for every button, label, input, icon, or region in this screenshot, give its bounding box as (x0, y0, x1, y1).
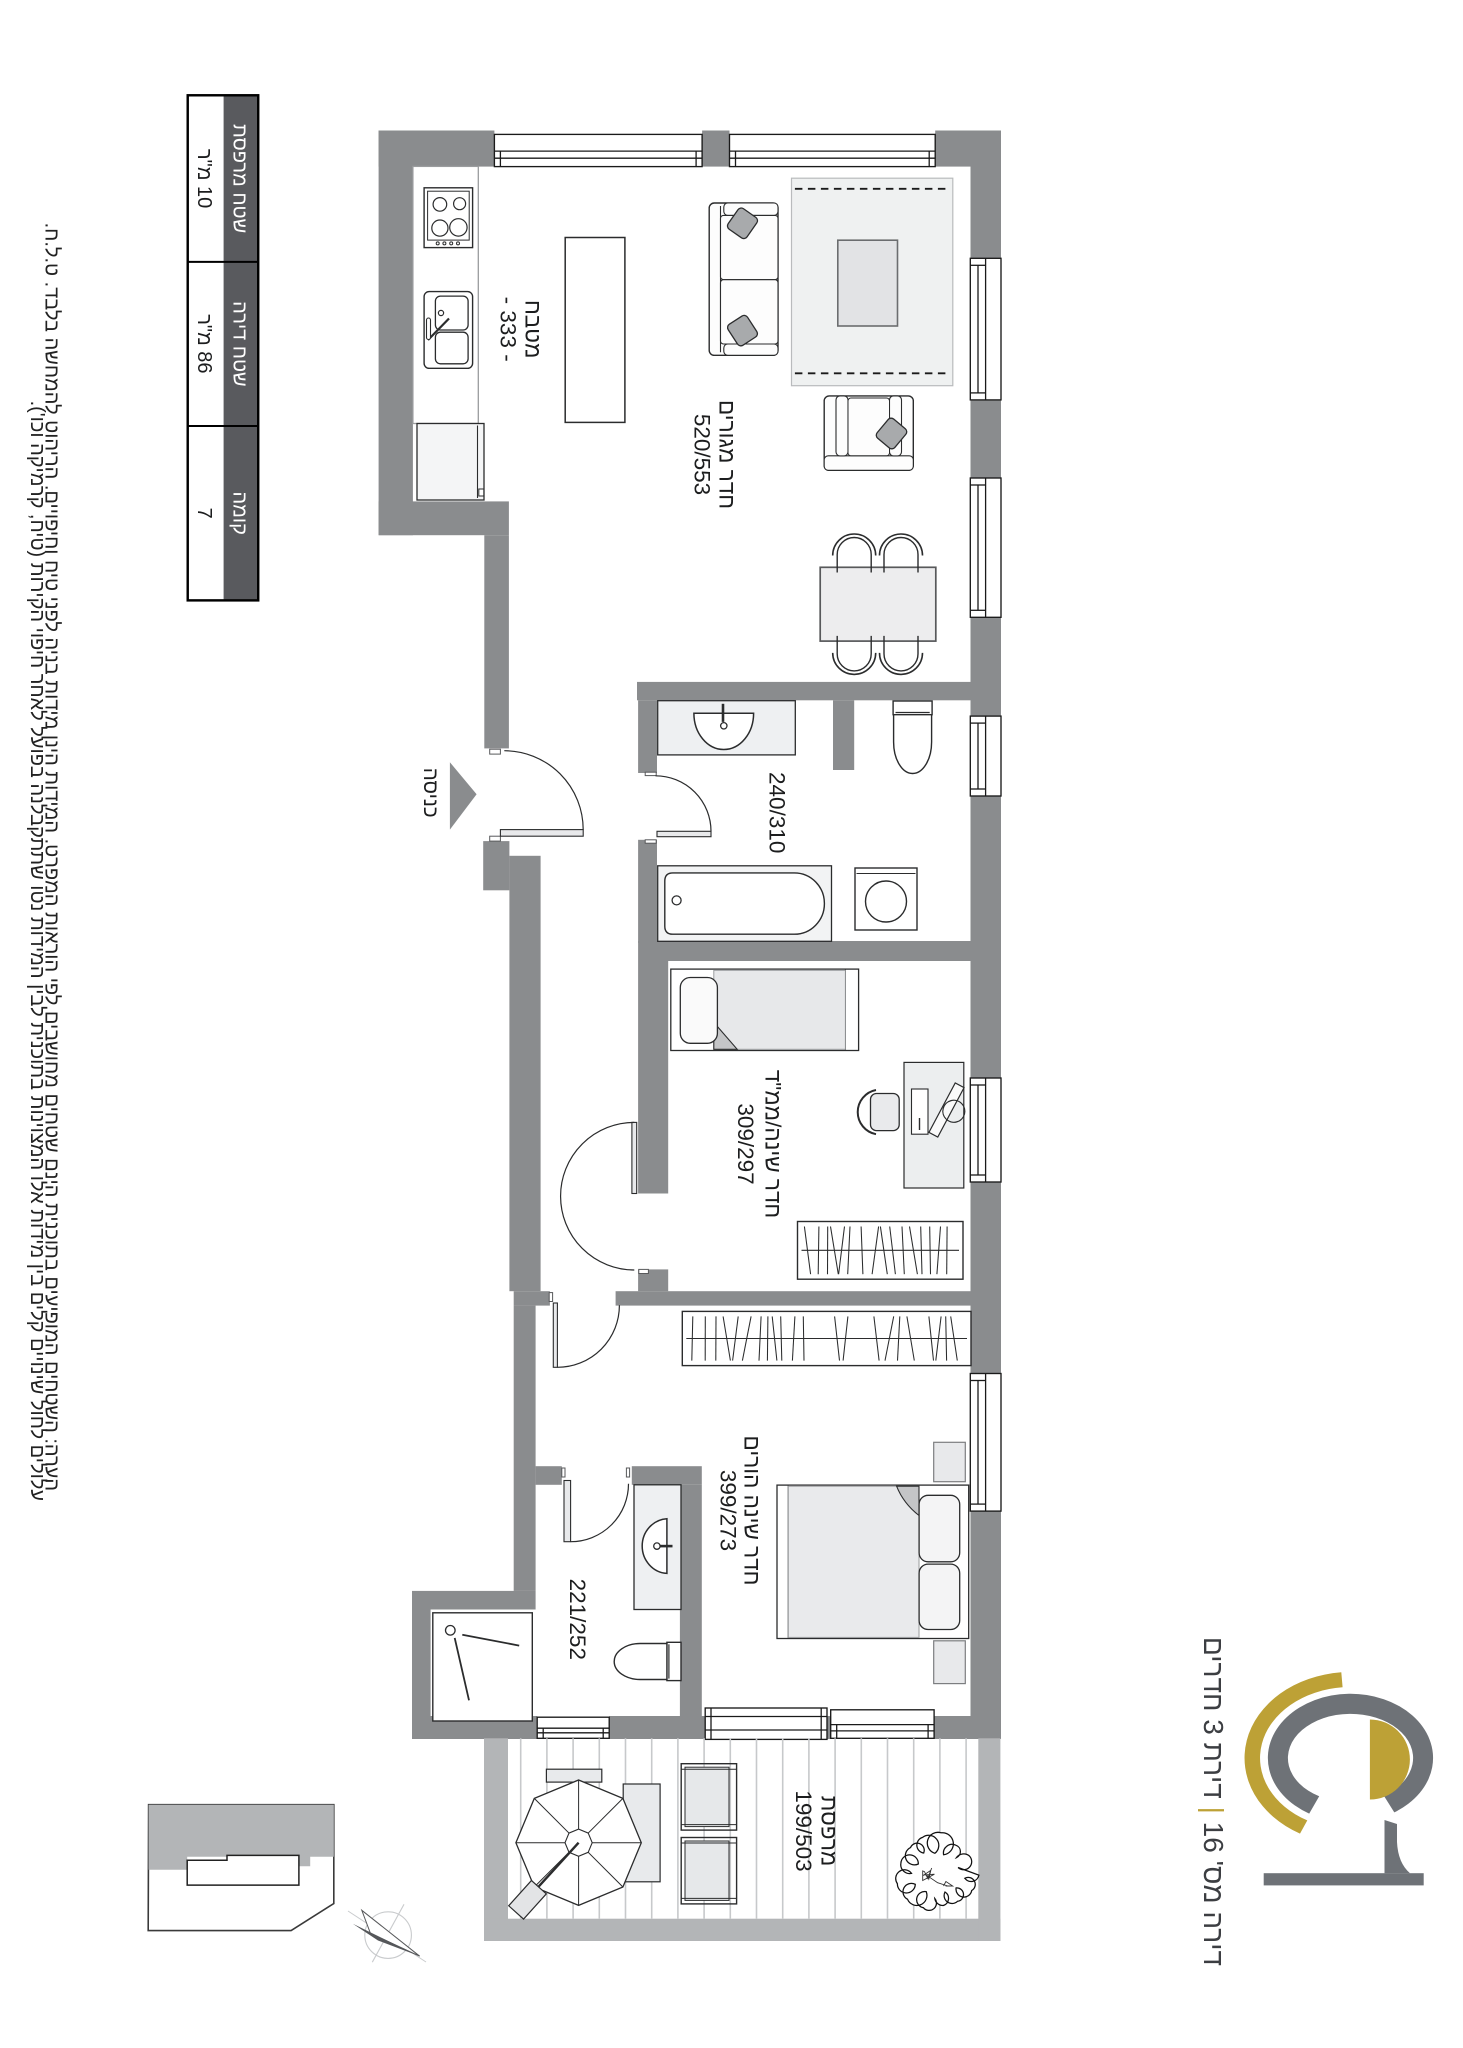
svg-text:520/553: 520/553 (689, 414, 714, 495)
svg-text:חדר שינה הורים: חדר שינה הורים (739, 1436, 764, 1586)
svg-text:קומה: קומה (229, 491, 251, 534)
svg-text:86 מ"ר: 86 מ"ר (193, 314, 215, 373)
svg-text:דירה מס' 16 | דירת 3 חדרים: דירה מס' 16 | דירת 3 חדרים (1198, 1637, 1229, 1966)
svg-text:309/297: 309/297 (733, 1103, 758, 1184)
svg-text:199/503: 199/503 (791, 1790, 816, 1871)
svg-text:221/252: 221/252 (565, 1579, 590, 1660)
svg-text:240/310: 240/310 (765, 772, 790, 853)
svg-text:10 מ"ר: 10 מ"ר (193, 149, 215, 208)
svg-text:- 333 -: - 333 - (496, 297, 521, 362)
svg-text:חדר שינה/ממ"ד: חדר שינה/ממ"ד (761, 1070, 786, 1218)
svg-text:מטבח: מטבח (521, 300, 546, 358)
svg-text:כניסה: כניסה (419, 768, 442, 818)
svg-text:7: 7 (193, 508, 215, 519)
svg-text:399/273: 399/273 (716, 1470, 741, 1551)
svg-text:עלולים לחול שינויים קלים בין מ: עלולים לחול שינויים קלים בין מידות אלו ה… (26, 401, 48, 1501)
svg-text:שטח דירה: שטח דירה (229, 301, 251, 386)
svg-text:חדר מגורים: חדר מגורים (715, 400, 740, 509)
svg-text:שטח מרפסת: שטח מרפסת (229, 124, 251, 233)
svg-text:מרפסת: מרפסת (817, 1796, 842, 1867)
